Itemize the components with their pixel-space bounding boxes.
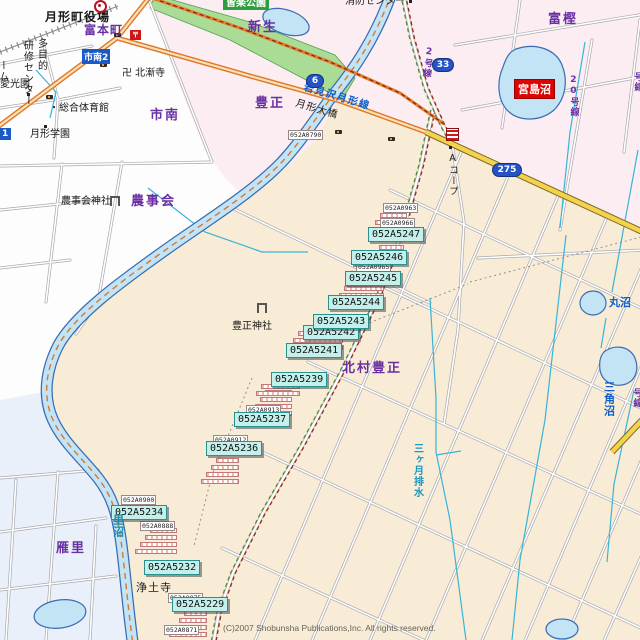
greenhouse-rows	[201, 456, 239, 484]
area-label-kitamura-toyomasa: 北村豊正	[342, 362, 402, 376]
lake-label-sankakunuma: 三角沼	[603, 381, 615, 417]
poi-toyomasa-shrine: 豊正神社	[232, 322, 272, 333]
lane-label-partial-top: 号線	[632, 72, 640, 92]
traffic-signal-icon	[388, 137, 395, 141]
poi-acoop: Aコープ	[447, 153, 457, 197]
route-shield-33: 33	[432, 58, 454, 72]
poi-fire-center: 消防センター	[345, 0, 405, 8]
poi-aikoen: 愛光園	[0, 80, 30, 91]
address-plate[interactable]: 052A5245	[345, 271, 401, 286]
building-dot-icon	[44, 125, 47, 128]
poi-nojikai-shrine: 農事会神社	[61, 197, 111, 208]
lake-label-satonuma: 里沼	[112, 514, 124, 538]
torii-icon	[110, 196, 120, 206]
park-name-box: 皆楽公園	[223, 0, 269, 10]
lake-label-marunuma: 丸沼	[609, 297, 631, 309]
block-number-shinami2: 市南2	[82, 49, 110, 64]
address-plate[interactable]: 052A5232	[144, 560, 200, 575]
route-shield-275: 275	[492, 163, 522, 177]
small-address-plate: 052A0871	[164, 625, 199, 635]
traffic-signal-icon	[46, 95, 53, 99]
address-plate[interactable]: 052A5239	[271, 372, 327, 387]
address-plate[interactable]: 052A5229	[172, 597, 228, 612]
building-dot-icon	[449, 146, 452, 149]
address-plate[interactable]: 052A5237	[234, 412, 290, 427]
address-plate[interactable]: 052A5236	[206, 441, 262, 456]
address-plate[interactable]: 052A5243	[313, 314, 369, 329]
southeast-pond	[546, 619, 578, 639]
sankakunuma-pond	[600, 347, 637, 385]
poi-training-center-line1: 多目的	[35, 38, 46, 71]
area-label-nojikai: 農事会	[131, 195, 176, 209]
small-address-plate: 052A0900	[121, 495, 156, 505]
shop-icon	[446, 128, 459, 141]
town-hall-icon	[94, 0, 107, 13]
marunuma-pond	[580, 291, 606, 315]
poi-hokuzenji-temple: 卍 北漸寺	[122, 69, 165, 80]
small-address-plate: 052A0888	[140, 521, 175, 531]
lane-label-20: 20号線	[568, 75, 577, 117]
area-label-tomimotocho: 富本町	[84, 24, 123, 37]
area-label-shinsei: 新生	[248, 21, 278, 35]
poi-training-center-line2: 研修センター	[21, 40, 32, 106]
poi-gymnasium: ・総合体育館	[49, 104, 109, 115]
address-plate[interactable]: 052A5247	[368, 227, 424, 242]
area-label-shinami: 市南	[150, 109, 180, 123]
route-shield-6: 6	[306, 74, 324, 88]
small-address-plate: 052A0963	[383, 203, 418, 213]
copyright-text: (C)2007 Shobunsha Publications,Inc. All …	[223, 623, 436, 633]
block-number-shinami1-partial: 1	[0, 128, 11, 140]
drain-label-mikazuki: 三ヶ月排水	[411, 443, 422, 498]
map-canvas[interactable]: 052A5247 052A5246 052A5245 052A5244 052A…	[0, 0, 640, 640]
post-office-icon: 〒	[130, 30, 141, 40]
address-plate[interactable]: 052A5244	[328, 295, 384, 310]
poi-jodoji-temple: 浄土寺	[136, 582, 172, 594]
traffic-signal-icon	[335, 130, 342, 134]
miyajimanuma-label-box: 宮島沼	[514, 79, 555, 99]
torii-icon	[257, 303, 267, 313]
poi-gakuen: 月形学園	[30, 130, 70, 141]
area-label-toyomasa: 豊正	[255, 97, 285, 111]
address-plate[interactable]: 052A5246	[351, 250, 407, 265]
small-address-plate: 052A0790	[288, 130, 323, 140]
lane-label-partial-bottom: 号線	[631, 388, 640, 408]
area-label-karisato: 雁里	[56, 542, 86, 556]
address-plate[interactable]: 052A5241	[286, 343, 342, 358]
building-dot-icon	[409, 0, 412, 3]
area-label-togashi: 富樫	[548, 13, 578, 27]
